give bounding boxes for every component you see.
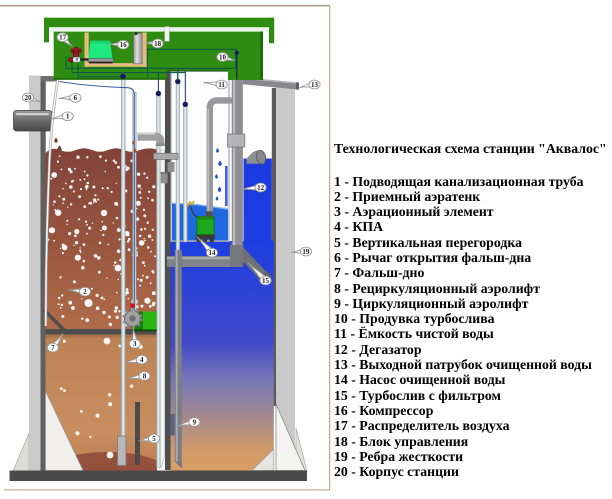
svg-text:12: 12 (257, 184, 265, 192)
svg-text:4: 4 (140, 356, 144, 364)
svg-text:1: 1 (66, 113, 70, 121)
svg-text:8: 8 (143, 372, 147, 380)
svg-text:2: 2 (83, 288, 87, 296)
svg-text:18: 18 (154, 40, 162, 48)
svg-text:9: 9 (193, 418, 197, 426)
svg-text:19: 19 (302, 248, 310, 256)
svg-text:14: 14 (209, 249, 217, 257)
svg-text:3: 3 (133, 340, 137, 348)
svg-text:16: 16 (120, 41, 128, 49)
svg-text:10: 10 (219, 53, 227, 61)
svg-text:13: 13 (311, 81, 319, 89)
svg-text:11: 11 (218, 81, 225, 89)
svg-text:5: 5 (152, 435, 156, 443)
svg-text:7: 7 (51, 344, 55, 352)
svg-text:15: 15 (262, 277, 270, 285)
svg-text:6: 6 (74, 94, 78, 102)
svg-text:17: 17 (59, 34, 67, 42)
svg-text:20: 20 (25, 94, 33, 102)
